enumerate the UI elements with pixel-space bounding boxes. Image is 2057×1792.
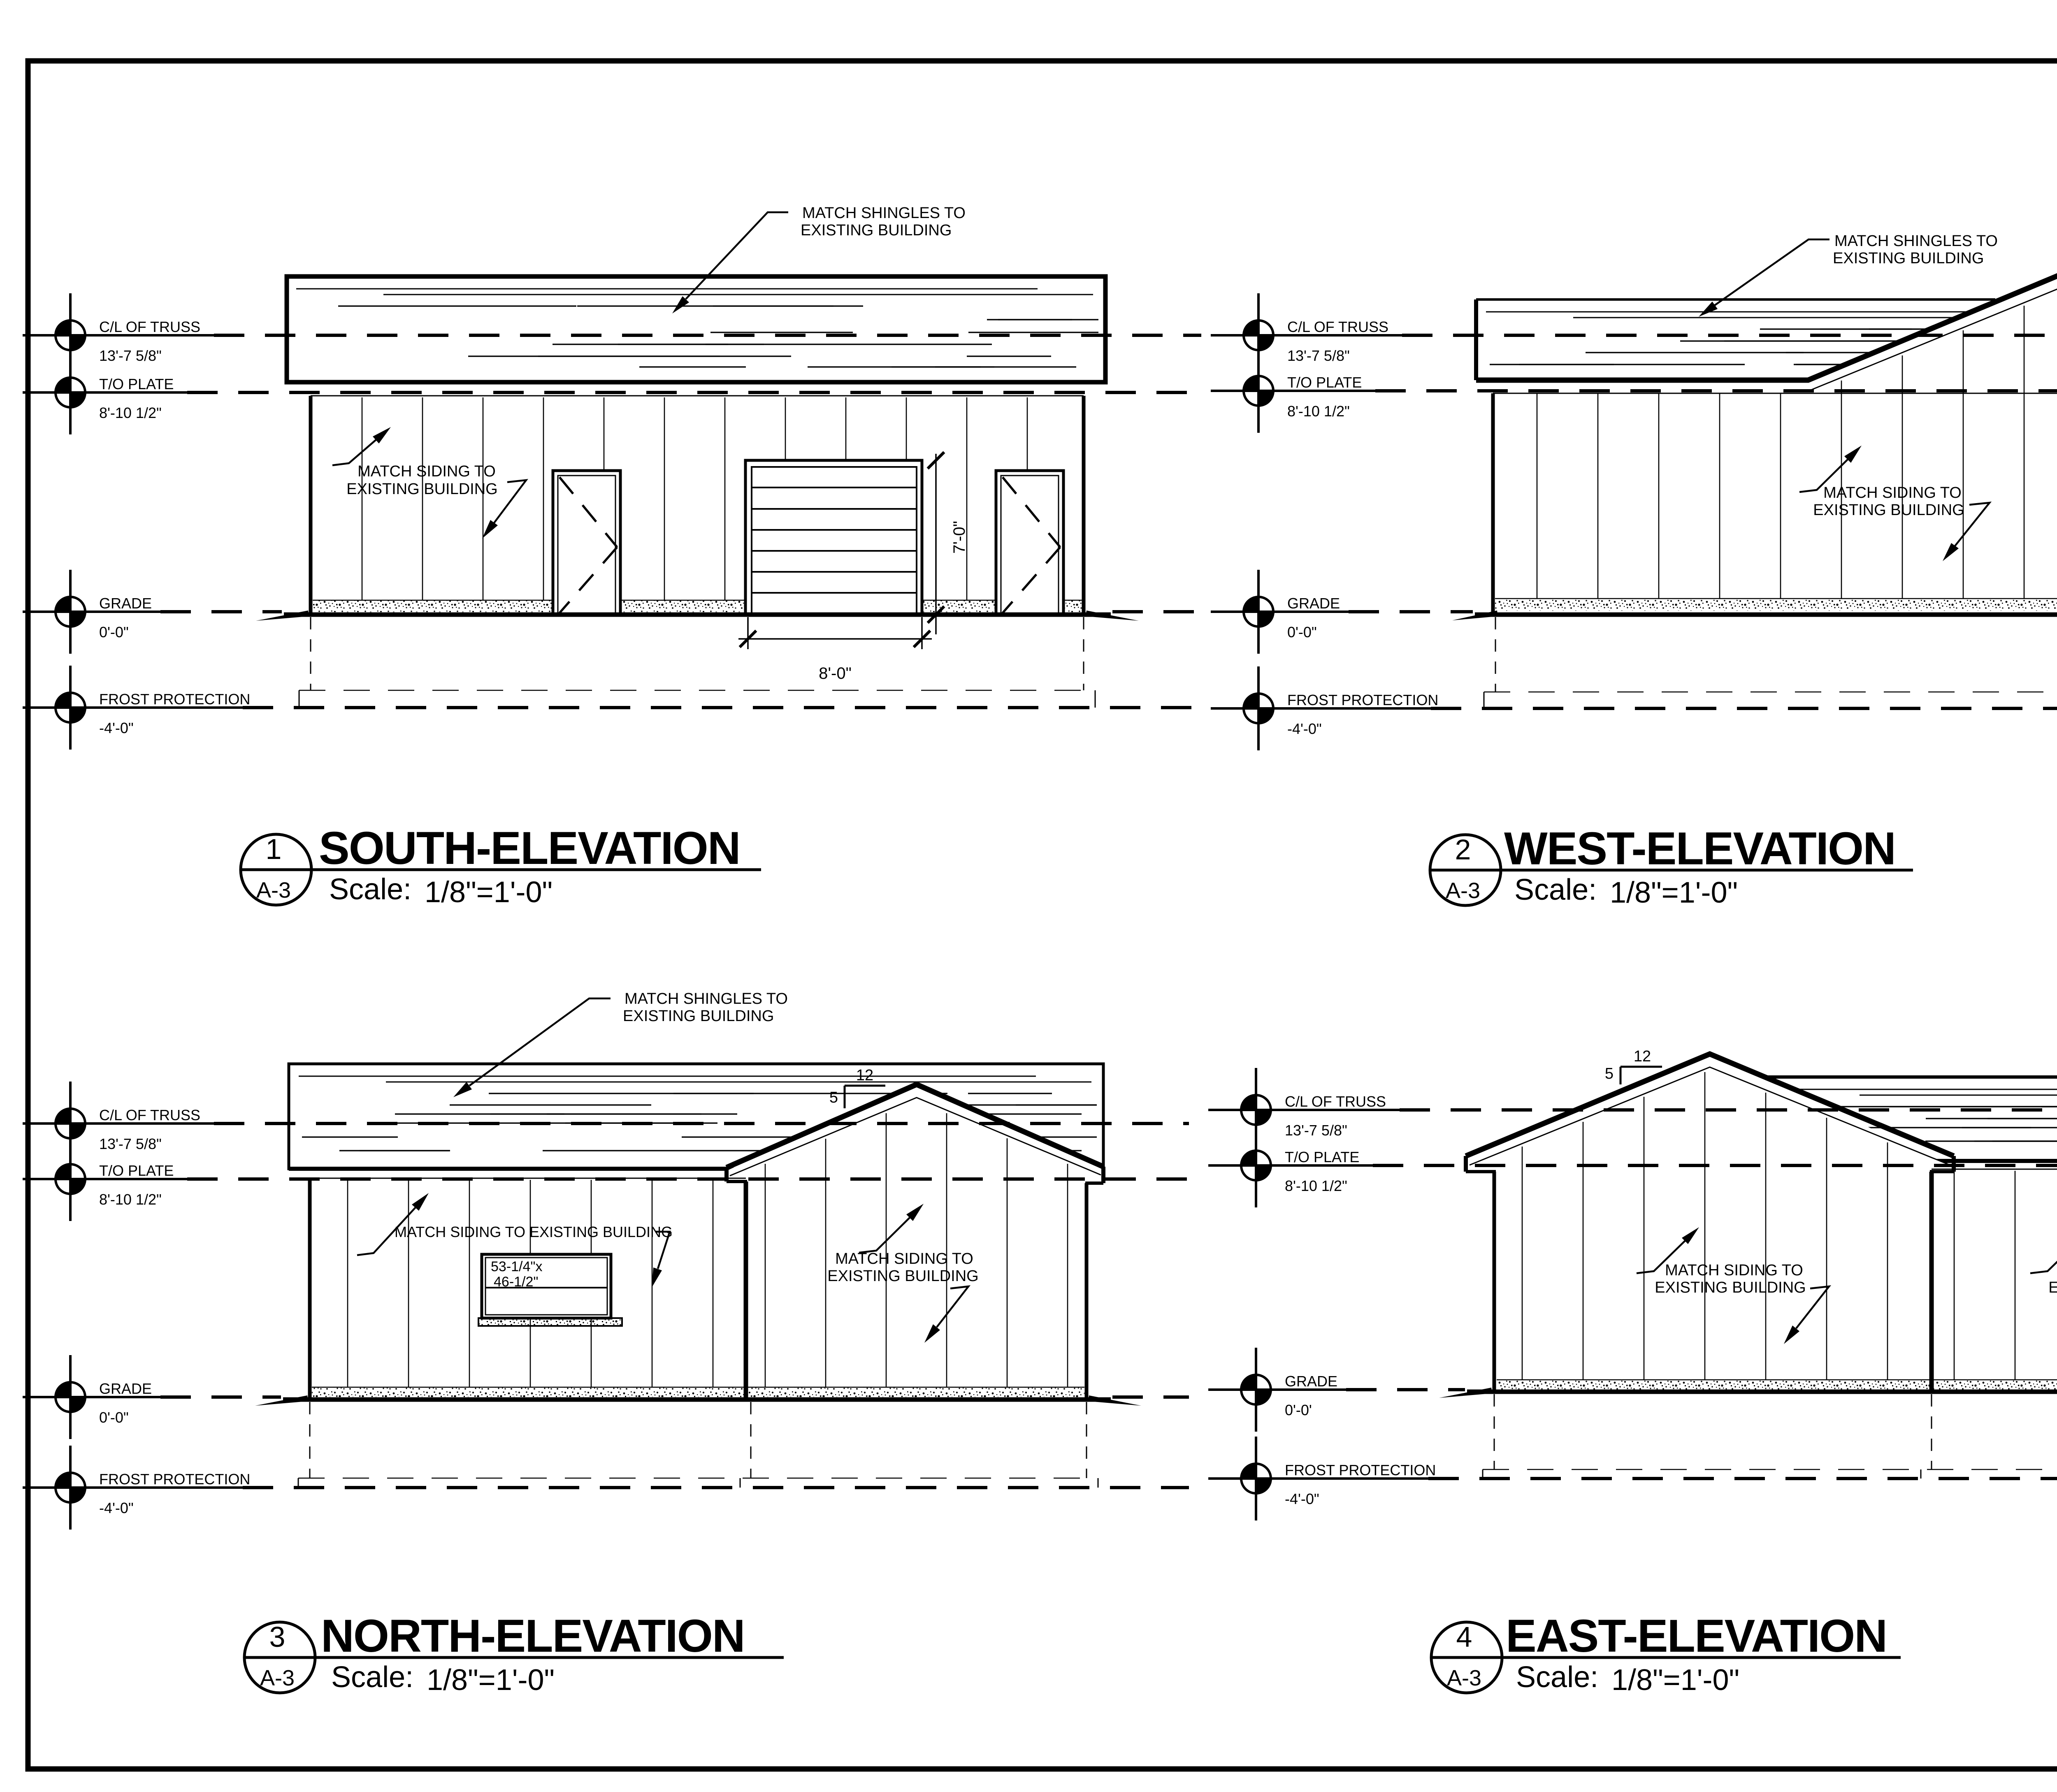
svg-text:8'-10 1/2": 8'-10 1/2" (1287, 403, 1350, 420)
svg-text:46-1/2": 46-1/2" (494, 1274, 538, 1290)
svg-text:EXISTING BUILDING: EXISTING BUILDING (623, 1007, 774, 1025)
svg-text:MATCH SIDING TO EXISTING BUILD: MATCH SIDING TO EXISTING BUILDING (395, 1223, 673, 1240)
svg-text:MATCH SHINGLES TO: MATCH SHINGLES TO (625, 990, 788, 1007)
svg-text:13'-7 5/8": 13'-7 5/8" (1285, 1122, 1347, 1139)
svg-text:GRADE: GRADE (1287, 595, 1340, 612)
svg-text:C/L OF TRUSS: C/L OF TRUSS (99, 1107, 200, 1123)
svg-text:1: 1 (266, 833, 282, 865)
svg-text:-4'-0": -4'-0" (1287, 720, 1322, 737)
svg-text:SOUTH-ELEVATION: SOUTH-ELEVATION (319, 822, 740, 874)
svg-text:5: 5 (829, 1089, 838, 1106)
svg-text:3: 3 (269, 1621, 286, 1653)
svg-text:Scale:: Scale: (331, 1661, 413, 1694)
svg-text:0'-0": 0'-0" (1287, 624, 1317, 641)
svg-text:T/O PLATE: T/O PLATE (1285, 1149, 1359, 1165)
svg-text:T/O PLATE: T/O PLATE (99, 376, 174, 392)
svg-text:2: 2 (1455, 833, 1471, 866)
svg-text:MATCH SIDING TO: MATCH SIDING TO (835, 1250, 973, 1267)
svg-text:8'-10 1/2": 8'-10 1/2" (1285, 1177, 1347, 1194)
svg-text:MATCH SIDING TO: MATCH SIDING TO (358, 463, 496, 480)
svg-text:8'-0": 8'-0" (819, 664, 852, 682)
svg-text:12: 12 (1634, 1048, 1651, 1065)
svg-text:EXISTING BUILDING: EXISTING BUILDING (1813, 501, 1964, 519)
svg-text:4: 4 (1456, 1621, 1472, 1653)
svg-text:13'-7 5/8": 13'-7 5/8" (99, 347, 162, 364)
svg-text:Scale:: Scale: (1514, 873, 1597, 906)
svg-text:EXISTING BUILDING: EXISTING BUILDING (346, 480, 497, 498)
svg-text:C/L OF TRUSS: C/L OF TRUSS (1287, 318, 1388, 335)
svg-text:MATCH SHINGLES TO: MATCH SHINGLES TO (802, 204, 966, 222)
svg-text:T/O PLATE: T/O PLATE (99, 1162, 174, 1179)
svg-text:13'-7 5/8": 13'-7 5/8" (1287, 347, 1350, 364)
svg-text:GRADE: GRADE (99, 595, 152, 612)
svg-text:A-3: A-3 (260, 1666, 295, 1690)
svg-text:C/L OF TRUSS: C/L OF TRUSS (1285, 1093, 1386, 1110)
svg-text:0'-0': 0'-0' (1285, 1402, 1312, 1418)
svg-text:Scale:: Scale: (1516, 1661, 1598, 1694)
svg-text:1/8"=1'-0": 1/8"=1'-0" (425, 876, 553, 909)
svg-text:MATCH SIDING TO: MATCH SIDING TO (1823, 484, 1962, 501)
svg-text:T/O PLATE: T/O PLATE (1287, 374, 1362, 391)
svg-text:FROST PROTECTION: FROST PROTECTION (99, 1471, 250, 1488)
svg-text:FROST PROTECTION: FROST PROTECTION (1287, 692, 1438, 708)
svg-text:-4'-0": -4'-0" (99, 720, 134, 736)
svg-text:EXISTING BUILDING: EXISTING BUILDING (827, 1267, 978, 1285)
svg-text:53-1/4"x: 53-1/4"x (491, 1259, 542, 1274)
svg-text:8'-10 1/2": 8'-10 1/2" (99, 1191, 162, 1208)
svg-text:A-3: A-3 (1446, 878, 1480, 903)
svg-text:NORTH-ELEVATION: NORTH-ELEVATION (321, 1610, 745, 1662)
svg-text:MATCH SHINGLES TO: MATCH SHINGLES TO (1834, 232, 1998, 250)
svg-text:-4'-0": -4'-0" (99, 1500, 134, 1516)
svg-text:WEST-ELEVATION: WEST-ELEVATION (1504, 823, 1895, 874)
svg-text:Scale:: Scale: (329, 873, 411, 906)
svg-text:-4'-0": -4'-0" (1285, 1490, 1319, 1507)
svg-text:A-3: A-3 (1447, 1666, 1481, 1690)
svg-text:GRADE: GRADE (1285, 1373, 1337, 1390)
svg-text:EAST-ELEVATION: EAST-ELEVATION (1506, 1610, 1887, 1662)
svg-text:13'-7 5/8": 13'-7 5/8" (99, 1135, 162, 1152)
svg-text:1/8"=1'-0": 1/8"=1'-0" (1610, 876, 1738, 909)
svg-text:0'-0": 0'-0" (99, 624, 129, 641)
svg-text:EXISTING BUILDING: EXISTING BUILDING (2048, 1279, 2057, 1296)
svg-text:12: 12 (856, 1067, 873, 1084)
svg-text:EXISTING BUILDING: EXISTING BUILDING (1833, 250, 1984, 267)
svg-text:A-3: A-3 (256, 878, 291, 903)
svg-text:FROST PROTECTION: FROST PROTECTION (99, 691, 250, 708)
svg-text:C/L OF TRUSS: C/L OF TRUSS (99, 318, 200, 335)
svg-text:GRADE: GRADE (99, 1380, 152, 1397)
svg-text:8'-10 1/2": 8'-10 1/2" (99, 404, 162, 421)
svg-text:5: 5 (1605, 1065, 1614, 1082)
svg-text:1/8"=1'-0": 1/8"=1'-0" (1611, 1664, 1739, 1697)
svg-text:EXISTING BUILDING: EXISTING BUILDING (1655, 1279, 1806, 1296)
svg-text:MATCH SIDING TO: MATCH SIDING TO (1665, 1262, 1803, 1279)
svg-text:FROST PROTECTION: FROST PROTECTION (1285, 1462, 1436, 1479)
svg-text:0'-0": 0'-0" (99, 1409, 129, 1426)
svg-text:1/8"=1'-0": 1/8"=1'-0" (427, 1664, 555, 1697)
svg-text:EXISTING BUILDING: EXISTING BUILDING (801, 222, 952, 239)
svg-text:7'-0": 7'-0" (950, 521, 968, 554)
